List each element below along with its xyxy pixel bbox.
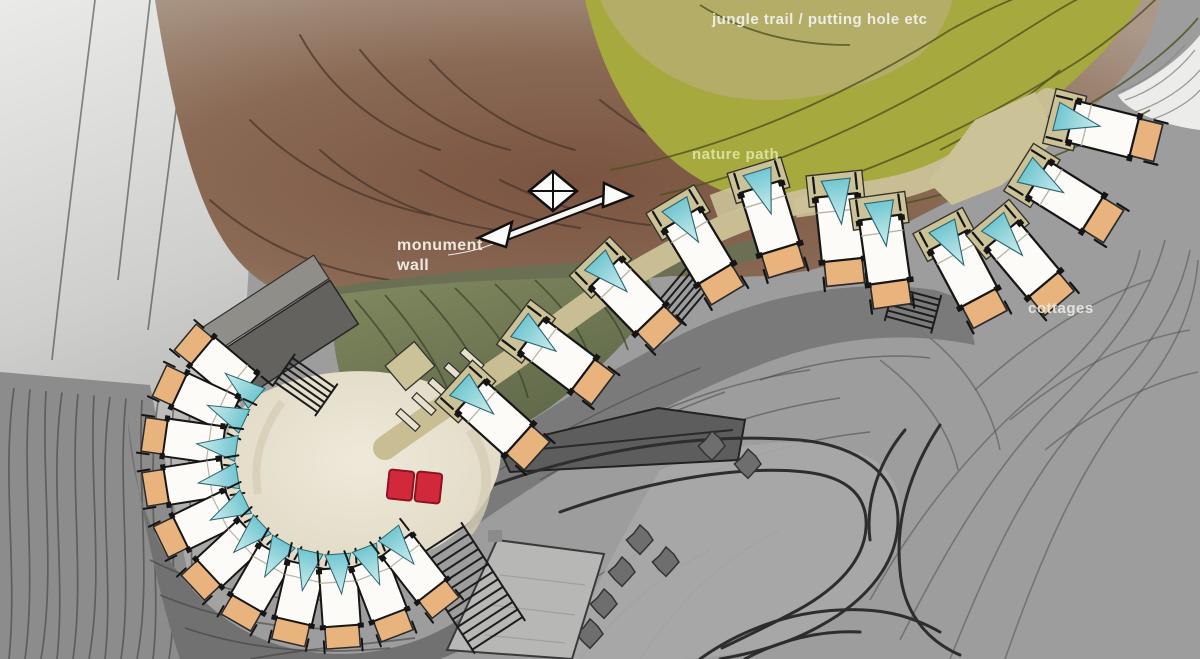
label-cottages: cottages: [1028, 300, 1094, 317]
site-plan-drawing: [0, 0, 1200, 659]
site-plan: jungle trail / putting hole etc nature p…: [0, 0, 1200, 659]
label-monument-wall: monument wall: [397, 236, 515, 275]
label-nature-path: nature path: [692, 146, 779, 163]
label-jungle-trail: jungle trail / putting hole etc: [712, 11, 928, 28]
